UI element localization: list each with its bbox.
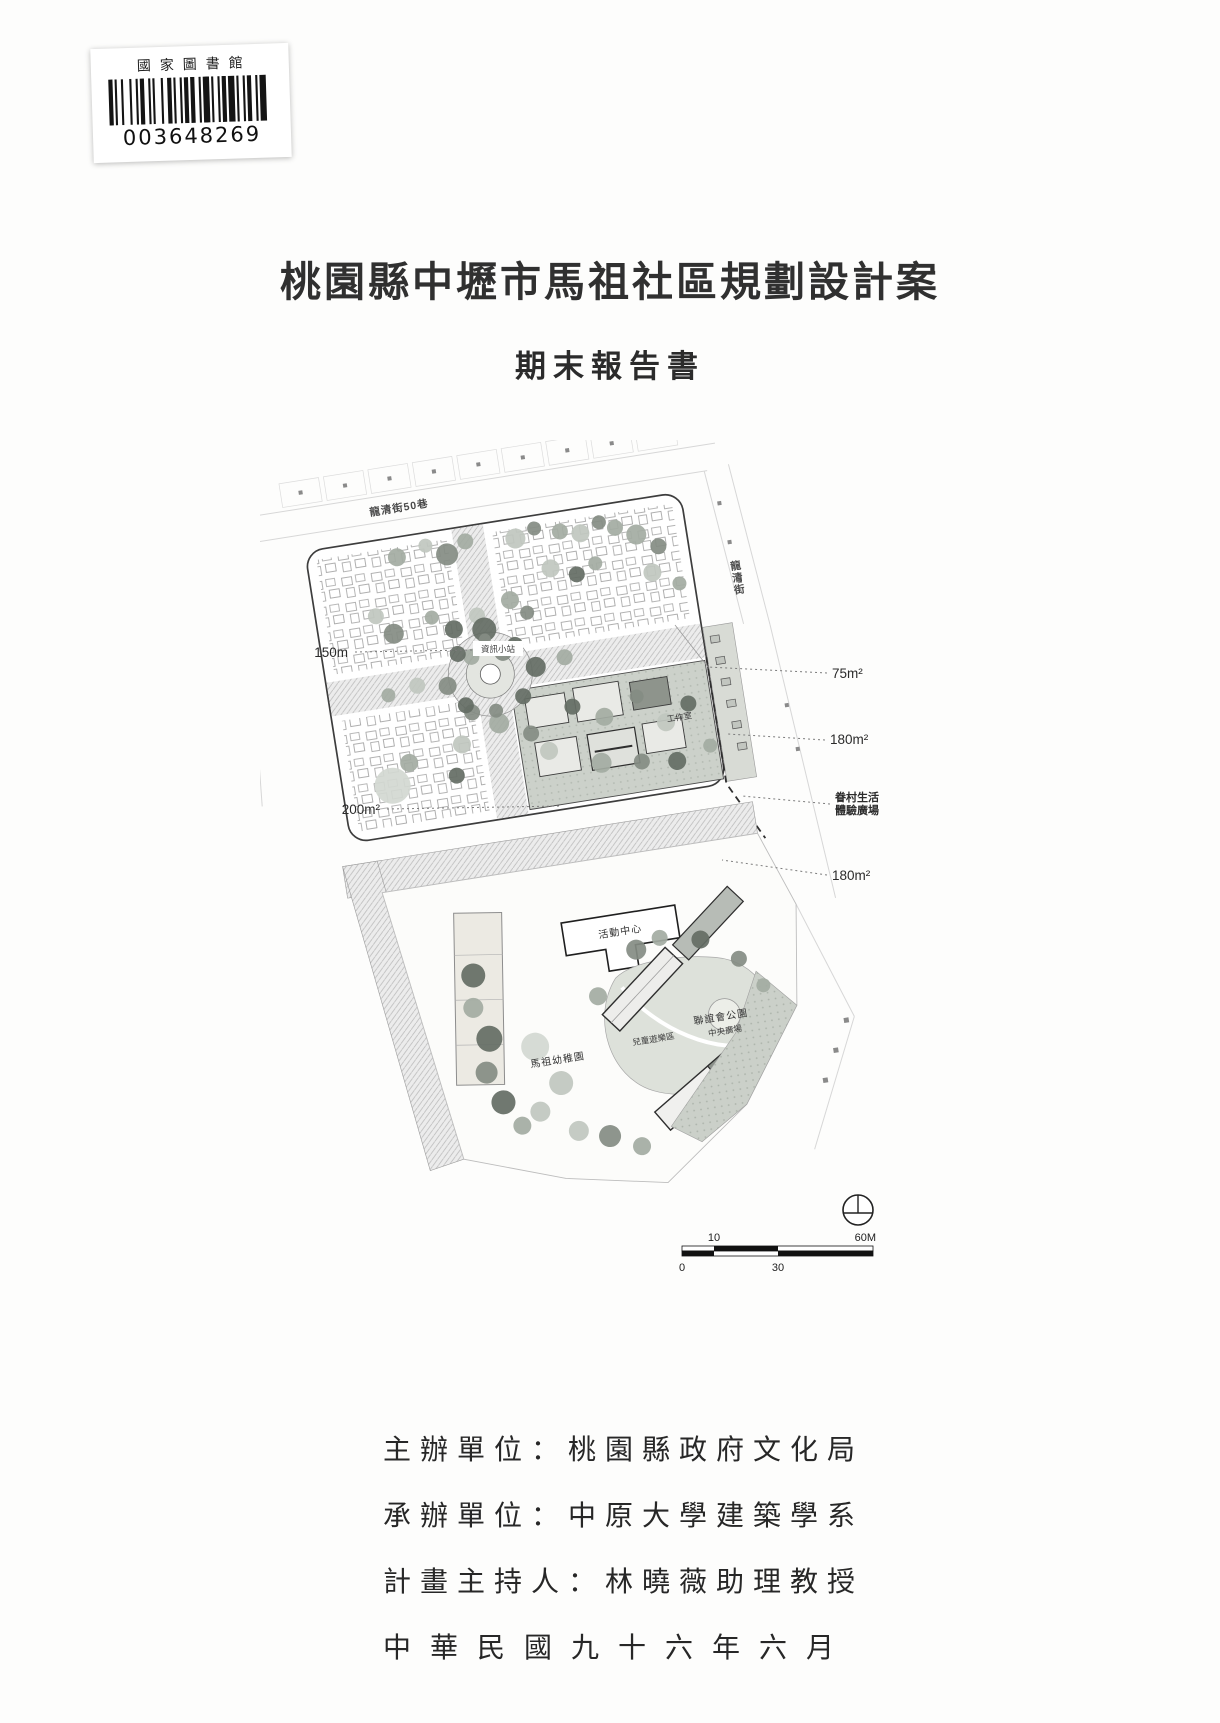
callout-180m2-upper: 180m²: [830, 732, 869, 747]
scale-0: 0: [679, 1262, 685, 1274]
street-right-label: 龍清街: [728, 559, 746, 597]
leader-village: [742, 796, 830, 804]
director-line: 計畫主持人：林曉薇助理教授: [383, 1560, 864, 1600]
callout-village-2: 體驗廣場: [835, 803, 879, 817]
callout-200m2: 200m²: [342, 802, 381, 817]
barcode-number: 003648269: [93, 121, 292, 151]
scale-10: 10: [708, 1232, 720, 1244]
barcode-image: [104, 74, 277, 125]
kindergarten-building: [454, 912, 505, 1085]
library-barcode-label: 國家圖書館 003648269: [90, 43, 291, 163]
page-title: 桃園縣中壢市馬祖社區規劃設計案: [0, 248, 1220, 308]
callout-village-1: 眷村生活: [834, 790, 879, 804]
scale-bar: 10 60M 0 30: [679, 1232, 876, 1274]
callout-75m2: 75m²: [832, 666, 863, 681]
report-cover-page: 國家圖書館 003648269 桃園縣中壢市馬祖社區規劃設計案 期末報告書: [0, 0, 1220, 1723]
undertaker-line: 承辦單位：中原大學建築學系: [383, 1494, 864, 1534]
scale-30: 30: [772, 1262, 784, 1274]
context-parcels: [279, 440, 678, 508]
callout-150m: 150m: [314, 645, 348, 660]
page-subtitle: 期末報告書: [0, 341, 1220, 386]
scale-60m: 60M: [855, 1232, 876, 1244]
organizer-line: 主辦單位：桃園縣政府文化局: [383, 1428, 864, 1468]
site-plan: 龍清街50巷 龍清街 工作室 活動中心 馬祖幼稚園 聯誼會公園 中央廣場 兒童遊…: [260, 440, 900, 1292]
info-station-label: 資訊小站: [481, 644, 516, 654]
site-plan-art: 龍清街50巷 龍清街 工作室 活動中心 馬祖幼稚園 聯誼會公園 中央廣場 兒童遊…: [260, 440, 875, 1236]
library-name: 國家圖書館: [100, 51, 290, 77]
credits-block: 主辦單位：桃園縣政府文化局 承辦單位：中原大學建築學系 計畫主持人：林曉薇助理教…: [383, 1428, 864, 1692]
callout-180m2-lower: 180m²: [832, 868, 871, 883]
north-arrow: [843, 1195, 873, 1225]
site-plan-drawing: 龍清街50巷 龍清街 工作室 活動中心 馬祖幼稚園 聯誼會公園 中央廣場 兒童遊…: [260, 440, 900, 1292]
date-line: 中華民國九十六年六月: [383, 1626, 864, 1666]
